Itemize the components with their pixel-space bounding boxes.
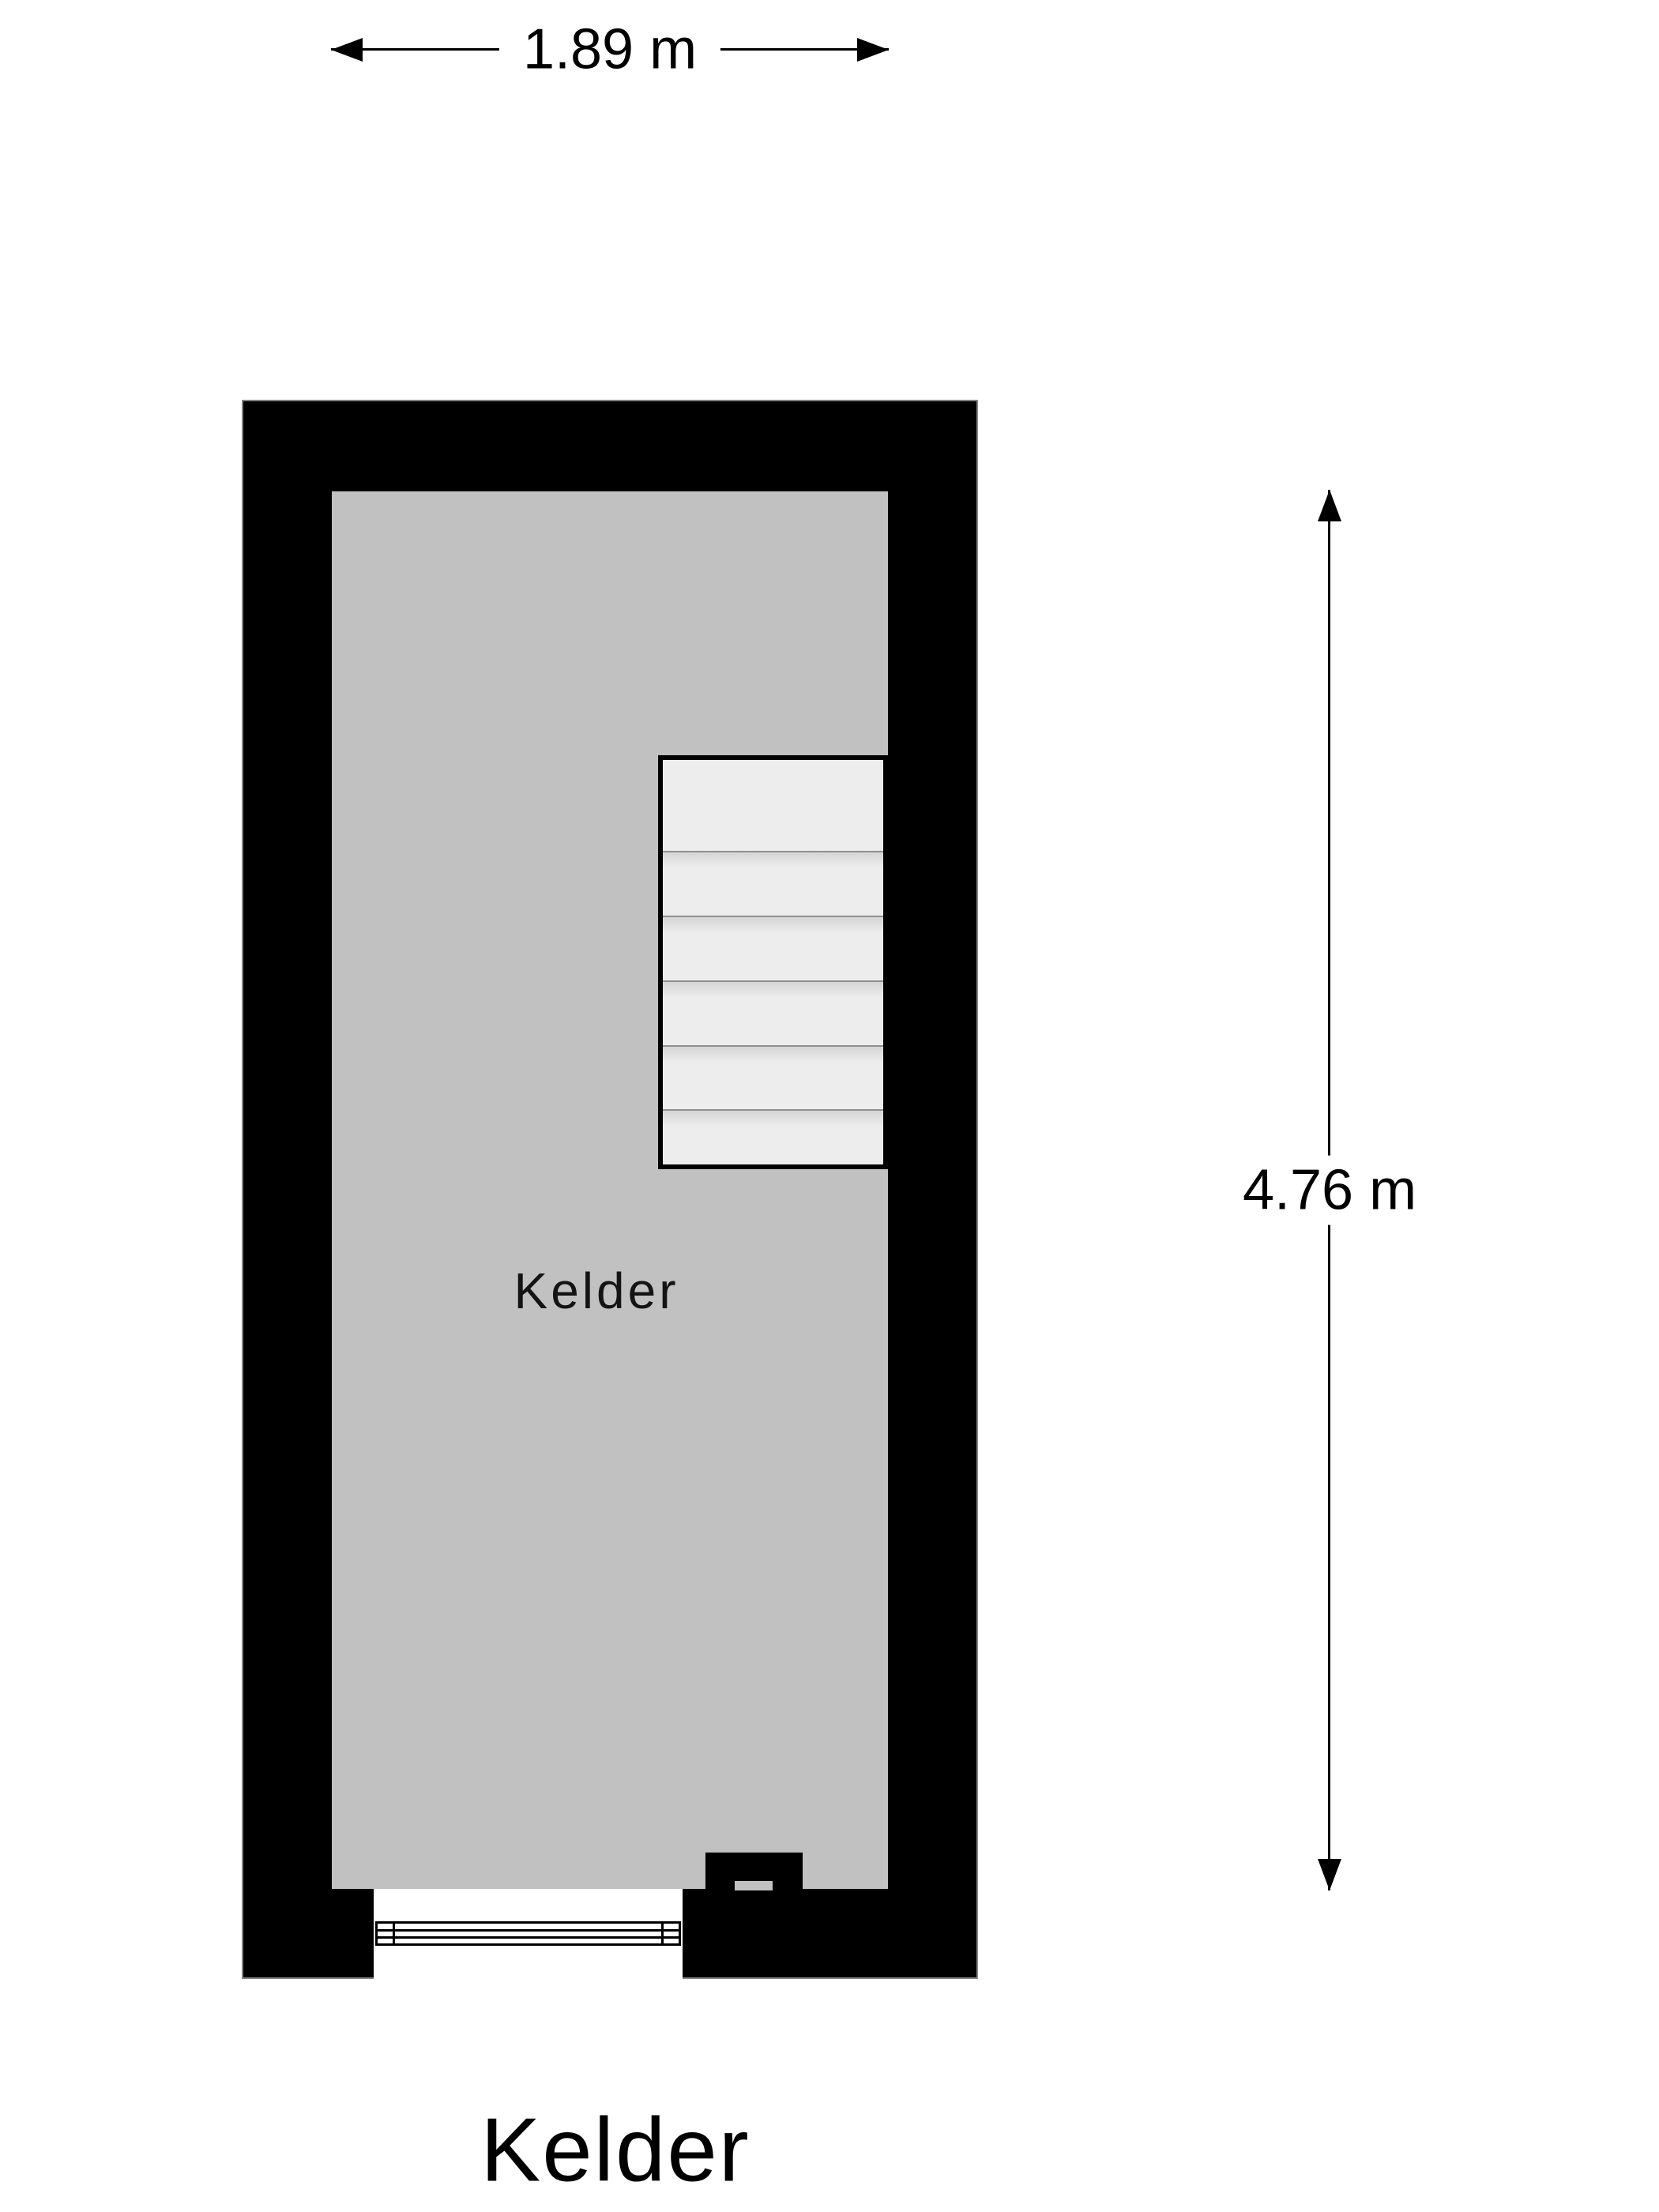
stair-tread [663, 1045, 883, 1109]
stair-tread [663, 851, 883, 916]
stair-tread [663, 916, 883, 980]
stairs [658, 755, 888, 1169]
floor-title: Kelder [480, 2099, 750, 2203]
window-pane-line [378, 1929, 679, 1932]
stair-tread [663, 1109, 883, 1164]
stair-landing [663, 760, 883, 851]
stair-tread [663, 980, 883, 1045]
arrow-up-icon [1318, 490, 1341, 521]
arrow-left-icon [331, 38, 363, 62]
width-dimension-label: 1.89 m [499, 17, 720, 83]
window-end-cap [661, 1924, 664, 1943]
dimension-width: 1.89 m [331, 26, 889, 73]
window-symbol [375, 1921, 681, 1946]
room-label: Kelder [514, 1262, 679, 1320]
arrow-down-icon [1318, 1859, 1341, 1890]
door-step-notch [735, 1881, 773, 1890]
dimension-height: 4.76 m [1317, 490, 1342, 1890]
exterior-wall: Kelder [243, 401, 976, 1977]
arrow-right-icon [857, 38, 889, 62]
window-end-cap [393, 1924, 395, 1943]
stair-treads [663, 760, 883, 1164]
height-dimension-label: 4.76 m [1230, 1155, 1429, 1225]
window-pane-line [378, 1936, 679, 1939]
floorplan-page: 1.89 m 4.76 m Kelder Kelder [0, 0, 1659, 2212]
window-opening [374, 1889, 683, 1982]
room-floor [332, 491, 888, 1889]
